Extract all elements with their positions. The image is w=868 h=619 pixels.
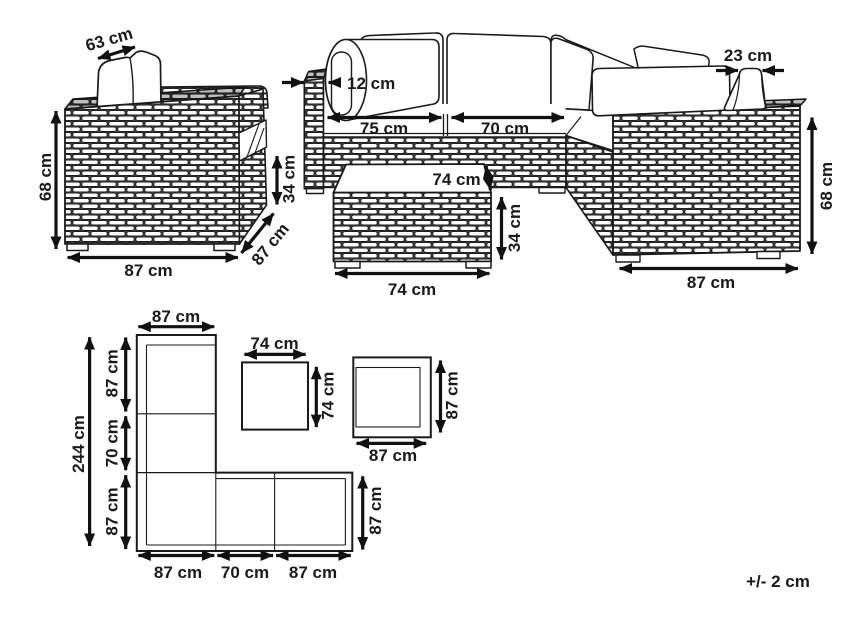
svg-text:87 cm: 87 cm xyxy=(443,371,462,419)
svg-text:74 cm: 74 cm xyxy=(250,334,298,353)
svg-text:87 cm: 87 cm xyxy=(366,486,385,534)
svg-text:87 cm: 87 cm xyxy=(154,563,202,582)
svg-text:74 cm: 74 cm xyxy=(432,170,480,189)
svg-text:75 cm: 75 cm xyxy=(360,119,408,138)
svg-text:87 cm: 87 cm xyxy=(369,446,417,465)
svg-text:68 cm: 68 cm xyxy=(817,162,836,210)
svg-text:87 cm: 87 cm xyxy=(103,349,122,397)
svg-text:70 cm: 70 cm xyxy=(221,563,269,582)
svg-text:23 cm: 23 cm xyxy=(724,46,772,65)
svg-text:34 cm: 34 cm xyxy=(280,155,299,203)
svg-text:34 cm: 34 cm xyxy=(505,204,524,252)
svg-text:70 cm: 70 cm xyxy=(481,119,529,138)
svg-text:12 cm: 12 cm xyxy=(347,74,395,93)
svg-text:74 cm: 74 cm xyxy=(388,280,436,299)
svg-text:87 cm: 87 cm xyxy=(289,563,337,582)
svg-text:87 cm: 87 cm xyxy=(687,273,735,292)
svg-text:87 cm: 87 cm xyxy=(152,307,200,326)
svg-text:87 cm: 87 cm xyxy=(124,261,172,280)
svg-text:68 cm: 68 cm xyxy=(36,153,55,201)
svg-text:+/- 2 cm: +/- 2 cm xyxy=(746,572,810,591)
svg-text:87 cm: 87 cm xyxy=(103,487,122,535)
svg-text:74 cm: 74 cm xyxy=(319,372,338,420)
svg-text:70 cm: 70 cm xyxy=(103,419,122,467)
svg-text:244 cm: 244 cm xyxy=(69,415,88,473)
